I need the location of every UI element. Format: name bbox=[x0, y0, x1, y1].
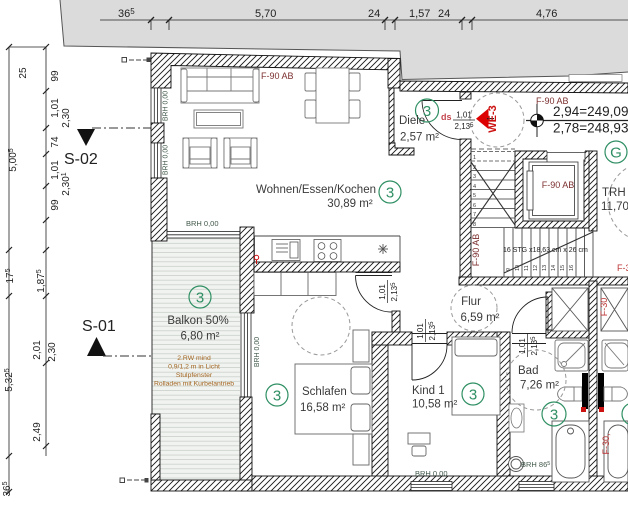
svg-text:10: 10 bbox=[515, 265, 521, 271]
svg-text:Flur: Flur bbox=[461, 296, 481, 308]
svg-text:1,01: 1,01 bbox=[416, 323, 425, 339]
svg-text:F-90 AB: F-90 AB bbox=[261, 71, 294, 81]
svg-text:2,135: 2,135 bbox=[390, 282, 399, 302]
svg-text:4,76: 4,76 bbox=[536, 8, 557, 20]
svg-text:2,49: 2,49 bbox=[32, 422, 43, 442]
svg-text:F-30,: F-30, bbox=[601, 433, 611, 454]
svg-text:3: 3 bbox=[196, 290, 204, 307]
svg-text:24: 24 bbox=[438, 8, 450, 20]
svg-text:Balkon 50%: Balkon 50% bbox=[167, 315, 228, 327]
svg-text:10,58 m²: 10,58 m² bbox=[412, 399, 458, 411]
svg-text:1,57: 1,57 bbox=[409, 8, 430, 20]
svg-text:1,01: 1,01 bbox=[518, 338, 527, 354]
svg-text:3: 3 bbox=[550, 407, 558, 424]
svg-text:3: 3 bbox=[469, 387, 477, 404]
svg-text:F-30: F-30 bbox=[617, 263, 628, 273]
svg-text:2,135: 2,135 bbox=[428, 321, 437, 341]
svg-text:Wohnen/Essen/Kochen: Wohnen/Essen/Kochen bbox=[256, 184, 376, 196]
svg-text:Diele: Diele bbox=[399, 115, 425, 127]
svg-text:175: 175 bbox=[5, 268, 16, 283]
svg-text:11,70: 11,70 bbox=[601, 201, 628, 213]
svg-text:BRH 0,00: BRH 0,00 bbox=[415, 469, 448, 478]
svg-text:Bad: Bad bbox=[518, 365, 538, 377]
svg-text:5: 5 bbox=[473, 193, 476, 199]
svg-text:5,005: 5,005 bbox=[8, 148, 19, 171]
svg-text:9: 9 bbox=[506, 268, 512, 271]
svg-text:2: 2 bbox=[473, 165, 476, 171]
svg-text:8: 8 bbox=[473, 222, 476, 228]
svg-text:99: 99 bbox=[50, 70, 61, 82]
svg-text:2,30: 2,30 bbox=[61, 108, 72, 128]
svg-text:30,89 m²: 30,89 m² bbox=[327, 198, 373, 210]
svg-text:2,135: 2,135 bbox=[455, 122, 475, 131]
svg-text:0,9/1,2 m in Licht: 0,9/1,2 m in Licht bbox=[168, 364, 220, 371]
svg-text:G: G bbox=[610, 145, 622, 162]
svg-text:2,135: 2,135 bbox=[530, 336, 539, 356]
svg-text:74: 74 bbox=[50, 136, 61, 148]
svg-text:S-02: S-02 bbox=[64, 151, 98, 168]
svg-text:13: 13 bbox=[542, 265, 548, 271]
svg-text:3: 3 bbox=[386, 185, 394, 202]
svg-text:F-90 AB: F-90 AB bbox=[542, 180, 575, 190]
svg-text:2,94=249,09: 2,94=249,09 bbox=[553, 104, 628, 119]
svg-text:1,01: 1,01 bbox=[456, 111, 472, 120]
svg-text:1: 1 bbox=[473, 155, 476, 161]
svg-text:S-01: S-01 bbox=[82, 318, 116, 335]
svg-text:14: 14 bbox=[551, 265, 557, 271]
svg-text:F-90 AB: F-90 AB bbox=[536, 96, 569, 106]
svg-text:F-90 AB: F-90 AB bbox=[471, 234, 481, 267]
svg-text:4: 4 bbox=[473, 184, 476, 190]
svg-text:7,26 m²: 7,26 m² bbox=[520, 380, 559, 392]
svg-text:Schlafen: Schlafen bbox=[302, 386, 347, 398]
svg-text:12: 12 bbox=[533, 265, 539, 271]
svg-text:ds: ds bbox=[441, 112, 452, 122]
svg-text:3: 3 bbox=[473, 174, 476, 180]
svg-text:Stulpfenster: Stulpfenster bbox=[176, 372, 213, 379]
svg-text:BRH 0,00: BRH 0,00 bbox=[186, 219, 219, 228]
svg-text:6,59 m²: 6,59 m² bbox=[461, 312, 500, 324]
svg-text:2,78=248,93: 2,78=248,93 bbox=[553, 121, 628, 136]
svg-text:1,01: 1,01 bbox=[50, 98, 61, 118]
svg-text:24: 24 bbox=[368, 8, 380, 20]
svg-text:2.RW mind: 2.RW mind bbox=[177, 355, 211, 362]
svg-text:1,01: 1,01 bbox=[50, 160, 61, 180]
svg-text:BRH 0,00: BRH 0,00 bbox=[254, 337, 261, 367]
svg-text:2,301: 2,301 bbox=[61, 172, 72, 195]
svg-text:5,325: 5,325 bbox=[4, 368, 15, 391]
svg-text:Rolladen mit Kurbelantrieb: Rolladen mit Kurbelantrieb bbox=[154, 381, 234, 388]
svg-text:WE-3: WE-3 bbox=[487, 105, 499, 133]
svg-text:5,70: 5,70 bbox=[255, 8, 276, 20]
svg-text:16 STG x18,63 cm x 26 cm: 16 STG x18,63 cm x 26 cm bbox=[503, 247, 588, 254]
svg-text:7: 7 bbox=[473, 212, 476, 218]
svg-text:1,01: 1,01 bbox=[378, 284, 387, 300]
svg-text:Kind 1: Kind 1 bbox=[412, 385, 445, 397]
svg-text:2,57 m²: 2,57 m² bbox=[400, 132, 439, 144]
svg-text:99: 99 bbox=[50, 199, 61, 211]
svg-text:1,875: 1,875 bbox=[36, 269, 47, 292]
svg-text:BRH 0,00: BRH 0,00 bbox=[163, 91, 170, 121]
svg-text:2,30: 2,30 bbox=[47, 342, 58, 362]
svg-text:F-30: F-30 bbox=[599, 298, 609, 317]
svg-text:16: 16 bbox=[569, 265, 575, 271]
svg-text:BRH 0,00: BRH 0,00 bbox=[163, 145, 170, 175]
svg-text:3: 3 bbox=[273, 388, 281, 405]
svg-text:15: 15 bbox=[560, 265, 566, 271]
svg-text:BRH 865: BRH 865 bbox=[521, 460, 550, 469]
svg-text:6,80 m²: 6,80 m² bbox=[181, 331, 220, 343]
svg-text:6: 6 bbox=[473, 203, 476, 209]
svg-text:TRH G: TRH G bbox=[602, 187, 628, 199]
svg-text:2,01: 2,01 bbox=[32, 340, 43, 360]
svg-text:16,58 m²: 16,58 m² bbox=[300, 402, 346, 414]
svg-text:25: 25 bbox=[18, 67, 29, 79]
svg-text:365: 365 bbox=[2, 481, 13, 496]
svg-text:11: 11 bbox=[524, 265, 530, 271]
